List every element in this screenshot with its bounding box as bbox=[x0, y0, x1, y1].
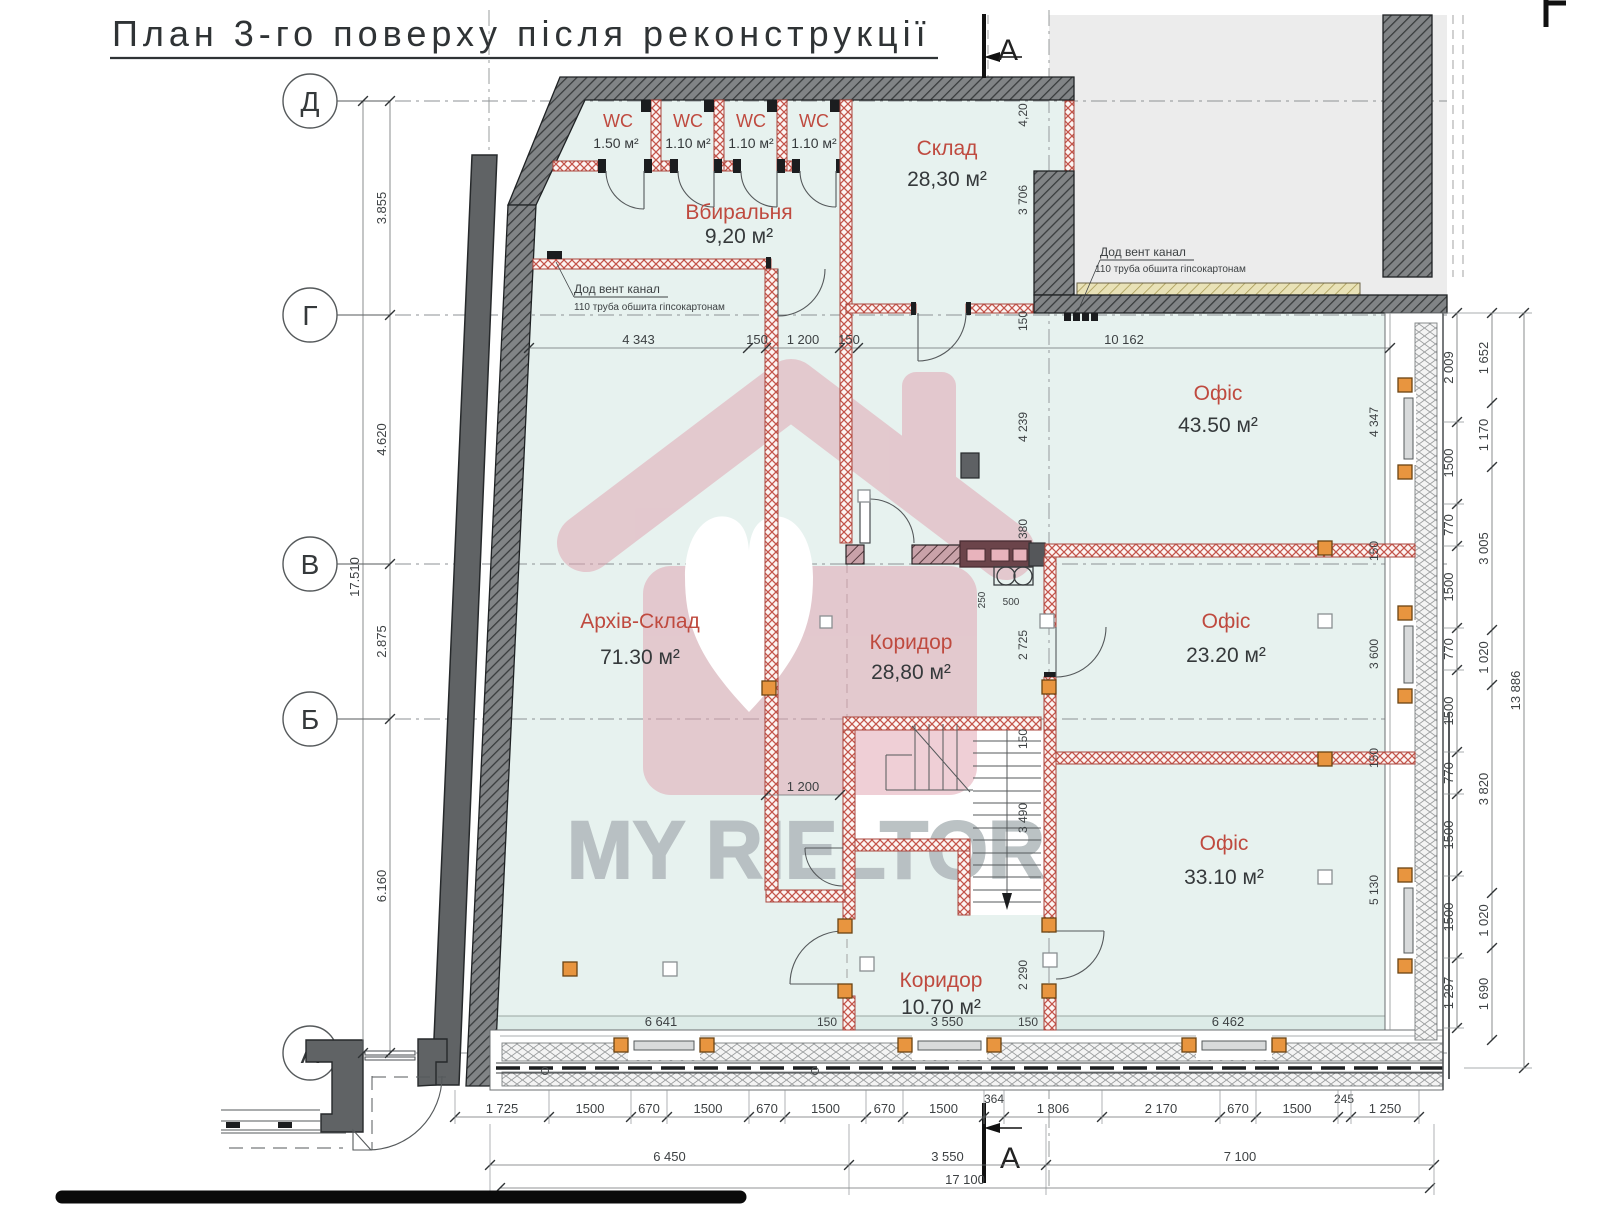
svg-text:1500: 1500 bbox=[1283, 1101, 1312, 1116]
svg-text:670: 670 bbox=[638, 1101, 660, 1116]
svg-text:43.50 м²: 43.50 м² bbox=[1178, 414, 1258, 437]
svg-text:1500: 1500 bbox=[1441, 821, 1456, 850]
svg-text:670: 670 bbox=[1227, 1101, 1249, 1116]
svg-text:Офіс: Офіс bbox=[1200, 832, 1249, 855]
svg-text:4 239: 4 239 bbox=[1016, 412, 1030, 442]
svg-text:150: 150 bbox=[838, 332, 860, 347]
svg-text:6 462: 6 462 bbox=[1212, 1014, 1245, 1029]
svg-text:1 020: 1 020 bbox=[1476, 904, 1491, 937]
svg-text:71.30 м²: 71.30 м² bbox=[600, 646, 680, 669]
svg-text:А: А bbox=[1000, 1142, 1020, 1175]
svg-text:Вбиральня: Вбиральня bbox=[685, 201, 792, 224]
svg-text:2 725: 2 725 bbox=[1016, 630, 1030, 660]
svg-text:150: 150 bbox=[1367, 748, 1381, 768]
svg-text:Склад: Склад bbox=[917, 137, 978, 160]
svg-text:364: 364 bbox=[984, 1092, 1004, 1106]
svg-text:28,80 м²: 28,80 м² bbox=[871, 661, 951, 684]
svg-text:150: 150 bbox=[746, 332, 768, 347]
svg-text:1500: 1500 bbox=[694, 1101, 723, 1116]
svg-text:670: 670 bbox=[756, 1101, 778, 1116]
svg-text:3 005: 3 005 bbox=[1476, 532, 1491, 565]
svg-text:Офіс: Офіс bbox=[1194, 382, 1243, 405]
svg-text:Архів-Склад: Архів-Склад bbox=[580, 610, 700, 633]
svg-text:23.20 м²: 23.20 м² bbox=[1186, 644, 1266, 667]
svg-text:110 труба обшита гіпсокартонам: 110 труба обшита гіпсокартонам bbox=[574, 301, 725, 313]
svg-text:WC: WC bbox=[799, 111, 829, 131]
svg-text:1 200: 1 200 bbox=[787, 779, 820, 794]
svg-text:1.10 м²: 1.10 м² bbox=[728, 135, 774, 151]
svg-text:9,20 м²: 9,20 м² bbox=[705, 225, 773, 248]
svg-text:6 641: 6 641 bbox=[645, 1014, 678, 1029]
svg-text:6 450: 6 450 bbox=[653, 1149, 686, 1164]
svg-text:В: В bbox=[301, 549, 320, 580]
svg-text:150: 150 bbox=[1018, 1015, 1038, 1029]
svg-text:1 170: 1 170 bbox=[1476, 419, 1491, 452]
svg-text:6.160: 6.160 bbox=[374, 870, 389, 903]
svg-text:Г: Г bbox=[302, 300, 317, 331]
svg-text:3.855: 3.855 bbox=[374, 192, 389, 225]
svg-text:28,30 м²: 28,30 м² bbox=[907, 168, 987, 191]
svg-text:150: 150 bbox=[817, 1015, 837, 1029]
svg-text:1500: 1500 bbox=[1441, 449, 1456, 478]
svg-text:7 100: 7 100 bbox=[1224, 1149, 1257, 1164]
svg-text:5 130: 5 130 bbox=[1367, 875, 1381, 905]
svg-text:3 706: 3 706 bbox=[1016, 185, 1030, 215]
svg-text:4 343: 4 343 bbox=[622, 332, 655, 347]
svg-text:4.620: 4.620 bbox=[374, 423, 389, 456]
svg-text:770: 770 bbox=[1441, 638, 1456, 660]
svg-text:WC: WC bbox=[603, 111, 633, 131]
svg-text:Б: Б bbox=[301, 704, 319, 735]
svg-text:2 290: 2 290 bbox=[1016, 960, 1030, 990]
svg-text:250: 250 bbox=[977, 591, 988, 608]
svg-text:770: 770 bbox=[1441, 762, 1456, 784]
svg-text:1 690: 1 690 bbox=[1476, 978, 1491, 1011]
svg-text:33.10 м²: 33.10 м² bbox=[1184, 866, 1264, 889]
svg-text:150: 150 bbox=[1016, 311, 1030, 331]
svg-text:Д: Д bbox=[301, 86, 320, 117]
svg-text:Дод вент канал: Дод вент канал bbox=[1100, 245, 1186, 259]
svg-text:1500: 1500 bbox=[576, 1101, 605, 1116]
svg-text:770: 770 bbox=[1441, 514, 1456, 536]
svg-text:1 200: 1 200 bbox=[787, 332, 820, 347]
svg-text:4,20: 4,20 bbox=[1016, 103, 1030, 127]
svg-text:2 170: 2 170 bbox=[1145, 1101, 1178, 1116]
svg-text:1.10 м²: 1.10 м² bbox=[665, 135, 711, 151]
svg-text:Дод вент канал: Дод вент канал bbox=[574, 282, 660, 296]
svg-text:1 652: 1 652 bbox=[1476, 342, 1491, 375]
svg-text:3 820: 3 820 bbox=[1476, 773, 1491, 806]
svg-text:2.875: 2.875 bbox=[374, 625, 389, 658]
svg-text:3 550: 3 550 bbox=[931, 1014, 964, 1029]
svg-text:MY RIELTOR: MY RIELTOR bbox=[567, 805, 1045, 896]
svg-text:1 297: 1 297 bbox=[1441, 977, 1456, 1010]
svg-text:670: 670 bbox=[874, 1101, 896, 1116]
svg-text:1.50 м²: 1.50 м² bbox=[593, 135, 639, 151]
svg-text:1.10 м²: 1.10 м² bbox=[791, 135, 837, 151]
svg-text:WC: WC bbox=[736, 111, 766, 131]
svg-text:1500: 1500 bbox=[929, 1101, 958, 1116]
svg-text:3 600: 3 600 bbox=[1367, 639, 1381, 669]
svg-text:Коридор: Коридор bbox=[870, 631, 953, 654]
svg-text:13 886: 13 886 bbox=[1508, 671, 1523, 711]
svg-text:110 труба обшита гіпсокартонам: 110 труба обшита гіпсокартонам bbox=[1095, 263, 1246, 275]
svg-text:500: 500 bbox=[1003, 597, 1020, 608]
svg-text:17 100: 17 100 bbox=[945, 1172, 985, 1187]
svg-text:1500: 1500 bbox=[1441, 697, 1456, 726]
svg-text:1500: 1500 bbox=[811, 1101, 840, 1116]
svg-text:2 009: 2 009 bbox=[1441, 351, 1456, 384]
svg-text:380: 380 bbox=[1016, 519, 1030, 539]
svg-text:Офіс: Офіс bbox=[1202, 610, 1251, 633]
svg-text:150: 150 bbox=[1367, 541, 1381, 561]
svg-text:1 020: 1 020 bbox=[1476, 641, 1491, 674]
svg-text:А: А bbox=[998, 34, 1018, 67]
svg-text:1 806: 1 806 bbox=[1037, 1101, 1070, 1116]
svg-text:Коридор: Коридор bbox=[900, 969, 983, 992]
svg-text:1 725: 1 725 bbox=[486, 1101, 519, 1116]
svg-text:1 250: 1 250 bbox=[1369, 1101, 1402, 1116]
svg-text:17.510: 17.510 bbox=[347, 557, 362, 597]
svg-text:3 550: 3 550 bbox=[931, 1149, 964, 1164]
svg-text:1500: 1500 bbox=[1441, 573, 1456, 602]
svg-text:1500: 1500 bbox=[1441, 903, 1456, 932]
svg-text:3 490: 3 490 bbox=[1016, 803, 1030, 833]
svg-text:WC: WC bbox=[673, 111, 703, 131]
svg-text:4 347: 4 347 bbox=[1367, 407, 1381, 437]
svg-text:План 3-го поверху після реконс: План 3-го поверху після реконструкції bbox=[112, 13, 931, 54]
svg-text:150: 150 bbox=[1016, 729, 1030, 749]
svg-text:10 162: 10 162 bbox=[1104, 332, 1144, 347]
